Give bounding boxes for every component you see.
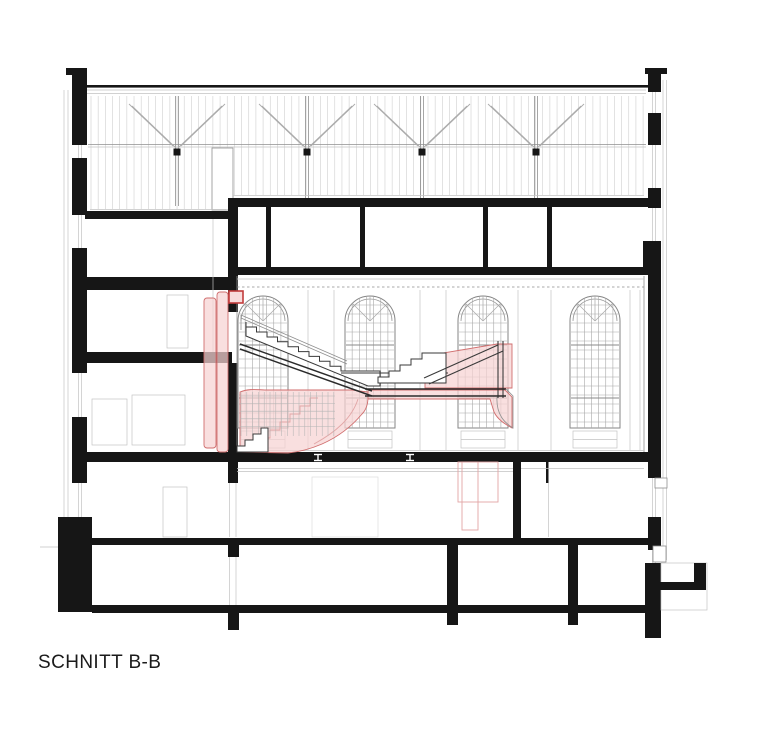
highlight-shafts-below [458, 462, 498, 530]
exterior-annex [660, 563, 707, 610]
left-wall [58, 68, 92, 612]
ground-floor-interior [237, 469, 644, 538]
drawing-title: SCHNITT B-B [38, 652, 161, 674]
roof-truss [85, 85, 648, 210]
drawing-sheet: SCHNITT B-B [0, 0, 780, 735]
mezzanine-posts [266, 207, 552, 267]
section-drawing [0, 0, 780, 735]
highlight-marker-box [229, 291, 243, 303]
highlight-duct [204, 292, 228, 452]
